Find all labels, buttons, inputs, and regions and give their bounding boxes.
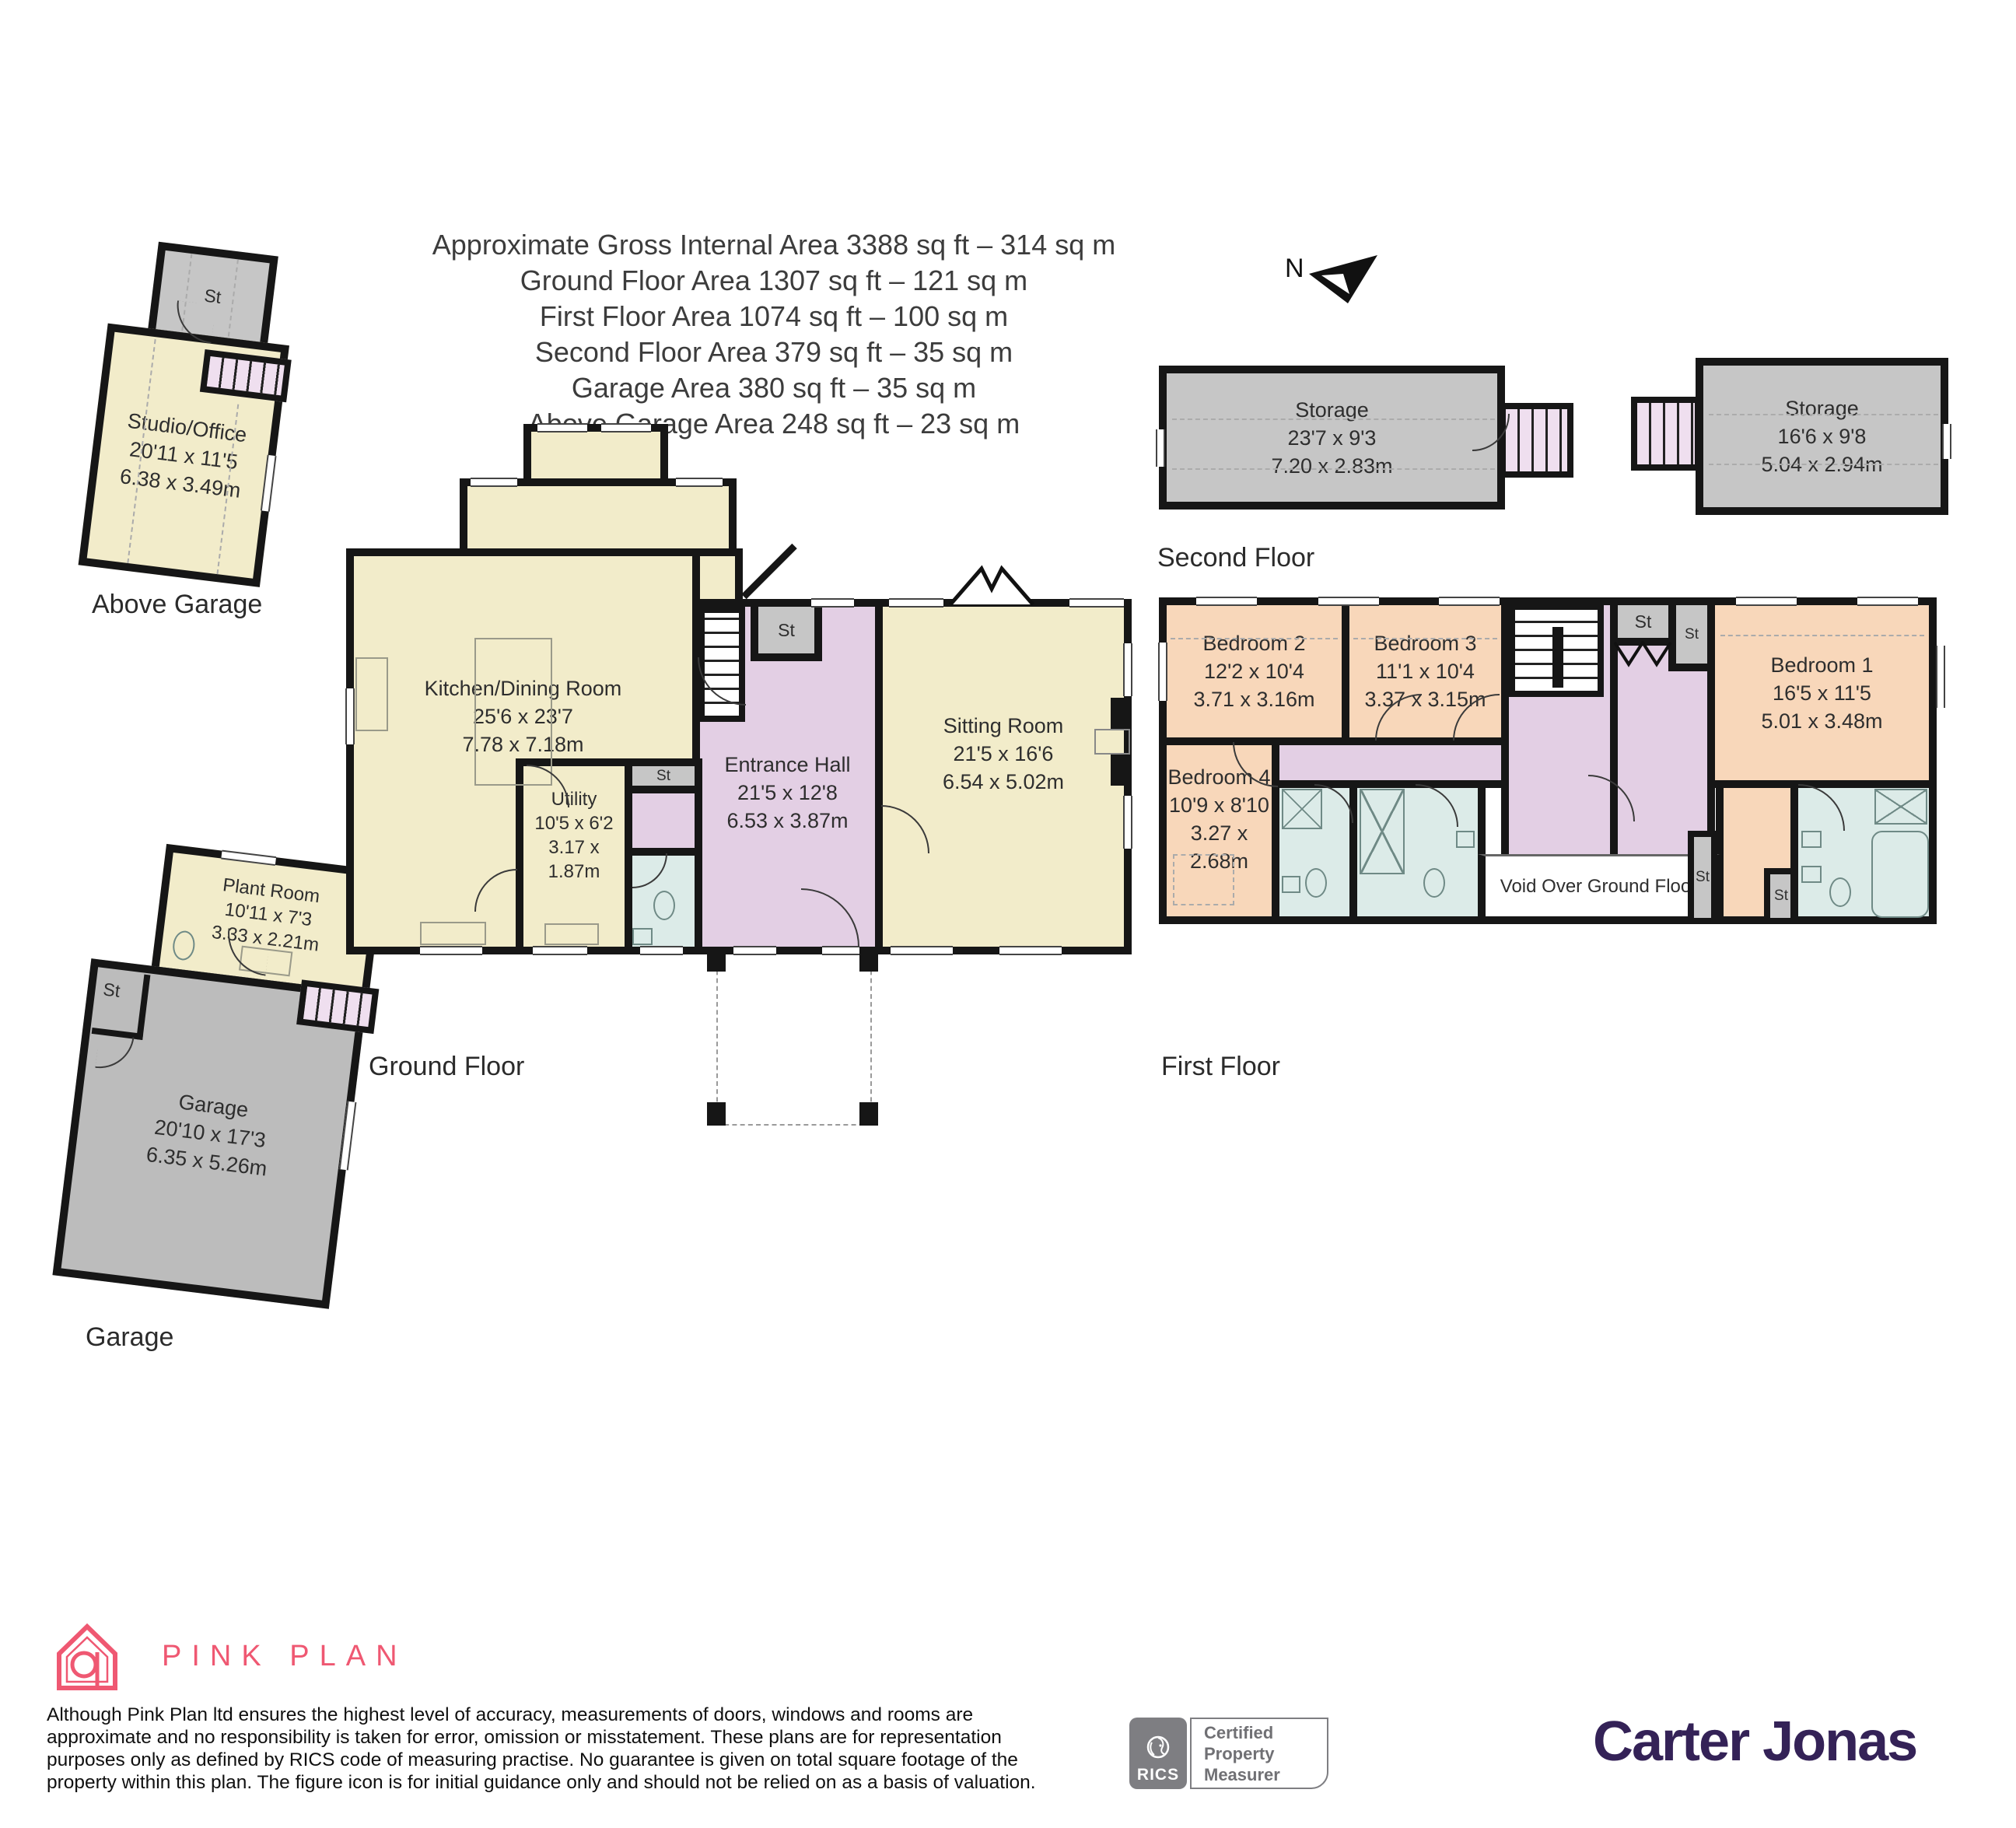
disclaimer-line: approximate and no responsibility is tak…: [47, 1726, 1036, 1749]
utility-sink: [544, 923, 599, 945]
window: [999, 946, 1062, 955]
porch-post: [859, 1102, 878, 1126]
first-floor-plan: Bedroom 2 12'2 x 10'4 3.71 x 3.16m Bedro…: [1159, 597, 1944, 924]
disclaimer-line: Although Pink Plan ltd ensures the highe…: [47, 1704, 1036, 1726]
window: [1439, 597, 1500, 606]
window: [640, 946, 683, 955]
room-label-group: Bedroom 3 11'1 x 10'4 3.37 x 3.15m: [1364, 629, 1486, 713]
room-dims-ft: 16'5 x 11'5: [1761, 679, 1882, 707]
ceiling-line: [1720, 635, 1924, 636]
room-storage-right: Storage 16'6 x 9'8 5.04 x 2.94m: [1696, 358, 1948, 515]
disclaimer: Although Pink Plan ltd ensures the highe…: [47, 1704, 1036, 1794]
stairs: [1509, 604, 1604, 697]
toilet: [1829, 877, 1851, 907]
cert-line: Property: [1204, 1743, 1327, 1764]
rics-wordmark: RICS: [1137, 1766, 1179, 1784]
room-label-group: Entrance Hall 21'5 x 12'8 6.53 x 3.87m: [724, 751, 850, 835]
ceiling-line: [1709, 464, 1938, 465]
rics-badge: RICS: [1129, 1718, 1187, 1789]
window: [420, 946, 482, 955]
room-dims-m: 5.01 x 3.48m: [1761, 707, 1882, 735]
second-floor-label: Second Floor: [1157, 543, 1314, 573]
window: [1736, 597, 1797, 606]
basin: [1456, 831, 1475, 848]
storage-label: St: [1696, 869, 1710, 886]
second-floor-area-line: Second Floor Area 379 sq ft – 35 sq m: [327, 334, 1221, 370]
window: [1123, 643, 1132, 696]
window: [811, 598, 854, 608]
room-dims-ft: 16'6 x 9'8: [1761, 422, 1882, 450]
room-label-group: Storage 23'7 x 9'3 7.20 x 2.83m: [1271, 396, 1392, 480]
ceiling-line: [1171, 638, 1338, 639]
first-floor-area-line: First Floor Area 1074 sq ft – 100 sq m: [327, 299, 1221, 334]
room-label-group: Studio/Office 20'11 x 11'5 6.38 x 3.49m: [118, 406, 249, 504]
porch-post: [707, 1102, 726, 1126]
room-hall-storage: St: [751, 599, 822, 661]
window: [537, 423, 587, 432]
window: [533, 946, 587, 955]
ground-floor-area-line: Ground Floor Area 1307 sq ft – 121 sq m: [327, 263, 1221, 299]
loft-hatch: [1173, 854, 1234, 905]
stairs: [296, 979, 379, 1034]
window: [891, 946, 953, 955]
second-floor-plan: Storage 23'7 x 9'3 7.20 x 2.83m Storage …: [1155, 358, 1968, 552]
floorplan-canvas: Approximate Gross Internal Area 3388 sq …: [0, 0, 2016, 1828]
room-name: Bedroom 3: [1364, 629, 1486, 657]
double-door-icon: [949, 562, 1034, 606]
window: [733, 946, 776, 955]
double-door-icon: [1613, 641, 1672, 667]
window: [601, 423, 651, 432]
window: [1156, 429, 1165, 467]
room-dims-ft: 21'5 x 12'8: [724, 779, 850, 807]
room-storage-strip: St: [1688, 831, 1717, 924]
room-dims-m: 3.71 x 3.16m: [1193, 685, 1314, 713]
room-bedroom2: Bedroom 2 12'2 x 10'4 3.71 x 3.16m: [1159, 597, 1349, 745]
room-dims-ft: 10'9 x 8'10: [1167, 791, 1272, 819]
room-label-group: Bedroom 2 12'2 x 10'4 3.71 x 3.16m: [1193, 629, 1314, 713]
hob: [355, 657, 388, 731]
first-floor-label: First Floor: [1161, 1052, 1280, 1082]
pink-plan-wordmark: PINK PLAN: [162, 1640, 408, 1673]
stairs: [1631, 397, 1701, 471]
room-storage-left: Storage 23'7 x 9'3 7.20 x 2.83m: [1159, 366, 1505, 510]
room-dims-m: 6.53 x 3.87m: [724, 807, 850, 835]
wc-basin: [632, 928, 653, 945]
ceiling-line: [1353, 638, 1497, 639]
room-dims-ft: 10'5 x 6'2: [523, 811, 625, 835]
window: [1936, 646, 1945, 708]
shower-tray: [1874, 789, 1927, 825]
stairs: [1500, 403, 1573, 478]
ground-floor-label: Ground Floor: [369, 1052, 524, 1082]
room-name: Bedroom 1: [1761, 651, 1882, 679]
room-dims-ft: 12'2 x 10'4: [1193, 657, 1314, 685]
room-dims-m: 6.54 x 5.02m: [943, 768, 1064, 796]
window: [822, 946, 859, 955]
angled-wall: [741, 544, 796, 599]
room-dims-ft: 23'7 x 9'3: [1271, 424, 1392, 452]
room-label-group: Storage 16'6 x 9'8 5.04 x 2.94m: [1761, 394, 1882, 478]
window: [1857, 597, 1918, 606]
room-name: Entrance Hall: [724, 751, 850, 779]
area-summary: Approximate Gross Internal Area 3388 sq …: [327, 227, 1221, 442]
porch-outline: [716, 954, 872, 1126]
room-label-group: Garage 20'10 x 17'3 6.35 x 5.26m: [145, 1084, 275, 1182]
ground-floor-plan: Kitchen/Dining Room 25'6 x 23'7 7.78 x 7…: [346, 424, 1132, 1132]
basin: [1801, 866, 1822, 883]
landing-right: [1610, 638, 1715, 863]
storage-partition: [92, 969, 151, 1040]
basin: [1282, 876, 1300, 893]
above-garage-label: Above Garage: [92, 590, 262, 620]
above-garage-plan: St Studio/Office 20'11 x 11'5 6.38 x 3.4…: [78, 236, 362, 598]
bath: [1871, 831, 1929, 918]
north-arrow-icon: [1309, 254, 1381, 306]
disclaimer-line: property within this plan. The figure ic…: [47, 1771, 1036, 1794]
basin: [1801, 831, 1822, 848]
room-dims-m: 3.17 x 1.87m: [523, 835, 625, 884]
room-dims-ft: 11'1 x 10'4: [1364, 657, 1486, 685]
window: [345, 688, 355, 744]
storage-label: St: [102, 979, 121, 1001]
storage-label: St: [656, 768, 670, 785]
room-kitchen-bay: [523, 424, 668, 486]
window: [1069, 598, 1124, 608]
rics-cert-label: Certified Property Measurer: [1190, 1718, 1328, 1789]
fireplace-pier: [1111, 755, 1132, 786]
pink-plan-logo-icon: [53, 1620, 121, 1693]
north-label: N: [1285, 254, 1304, 284]
cert-line: Certified: [1204, 1722, 1327, 1743]
window: [1123, 796, 1132, 849]
shower-tray: [1360, 789, 1405, 874]
room-dims-m: 7.20 x 2.83m: [1271, 452, 1392, 480]
room-name: Storage: [1761, 394, 1882, 422]
window: [471, 478, 517, 487]
window: [1158, 643, 1167, 701]
room-landing-storage: St: [1610, 597, 1676, 646]
ceiling-line: [1172, 418, 1495, 420]
room-kitchen-step: [692, 548, 743, 607]
disclaimer-line: purposes only as defined by RICS code of…: [47, 1749, 1036, 1771]
stair-rail: [1552, 627, 1563, 688]
window: [889, 598, 943, 608]
window: [1196, 597, 1257, 606]
void-area: Void Over Ground Floor: [1478, 854, 1720, 924]
storage-label: St: [1635, 611, 1652, 632]
wc-toilet: [653, 891, 675, 920]
fireplace: [1094, 729, 1130, 755]
window: [1942, 424, 1951, 459]
room-bedroom1: Bedroom 1 16'5 x 11'5 5.01 x 3.48m: [1707, 597, 1937, 788]
storage-label: St: [1685, 626, 1699, 643]
room-lobby: [625, 786, 702, 856]
gross-area-line: Approximate Gross Internal Area 3388 sq …: [327, 227, 1221, 263]
rics-lion-icon: [1141, 1732, 1175, 1766]
storage-label: St: [778, 620, 795, 641]
window: [1318, 597, 1379, 606]
room-sitting: Sitting Room 21'5 x 16'6 6.54 x 5.02m: [875, 599, 1132, 954]
porch-post: [859, 947, 878, 972]
window: [676, 478, 723, 487]
void-label: Void Over Ground Floor: [1500, 876, 1697, 898]
carter-jonas-logo: Carter Jonas: [1593, 1710, 1916, 1774]
room-name: Sitting Room: [943, 712, 1064, 740]
fireplace-pier: [1111, 698, 1132, 729]
room-label-group: Bedroom 1 16'5 x 11'5 5.01 x 3.48m: [1761, 651, 1882, 735]
room-kitchen-upper: [460, 478, 737, 556]
toilet: [1305, 868, 1327, 898]
room-name: Bedroom 2: [1193, 629, 1314, 657]
toilet: [1423, 868, 1445, 898]
kitchen-island: [474, 638, 552, 786]
ceiling-line: [1709, 414, 1938, 415]
garage-area-line: Garage Area 380 sq ft – 35 sq m: [327, 370, 1221, 406]
porch-post: [707, 947, 726, 972]
garage-label: Garage: [86, 1322, 173, 1353]
room-dims-ft: 21'5 x 16'6: [943, 740, 1064, 768]
storage-label: St: [1774, 888, 1788, 905]
north-compass: N: [1285, 254, 1381, 306]
cert-line: Measurer: [1204, 1764, 1327, 1785]
ceiling-line: [1172, 468, 1495, 470]
kitchen-sink: [420, 922, 486, 945]
room-label-group: Sitting Room 21'5 x 16'6 6.54 x 5.02m: [943, 712, 1064, 796]
